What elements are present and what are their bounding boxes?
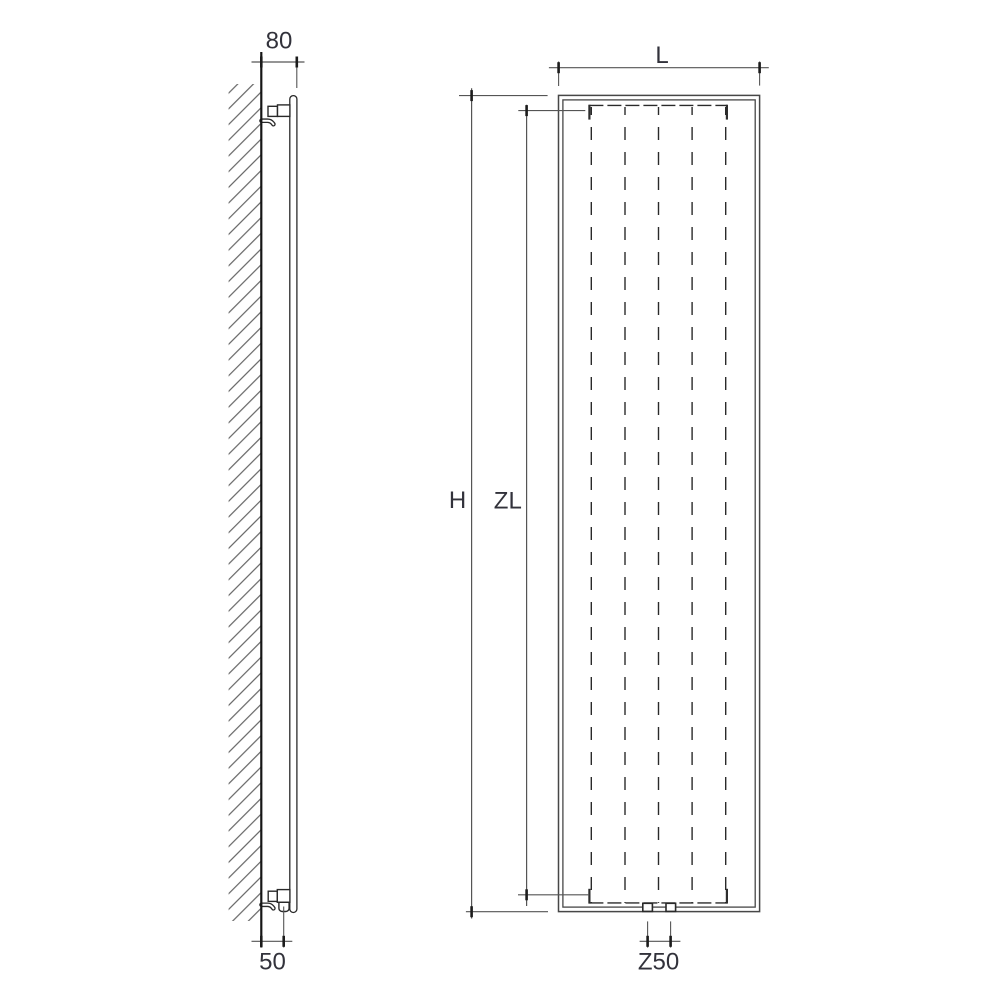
svg-text:L: L: [655, 42, 668, 69]
svg-text:ZL: ZL: [494, 488, 522, 515]
svg-text:H: H: [449, 487, 466, 514]
svg-text:Z50: Z50: [638, 949, 679, 976]
svg-text:80: 80: [266, 28, 293, 55]
svg-text:50: 50: [259, 949, 286, 976]
